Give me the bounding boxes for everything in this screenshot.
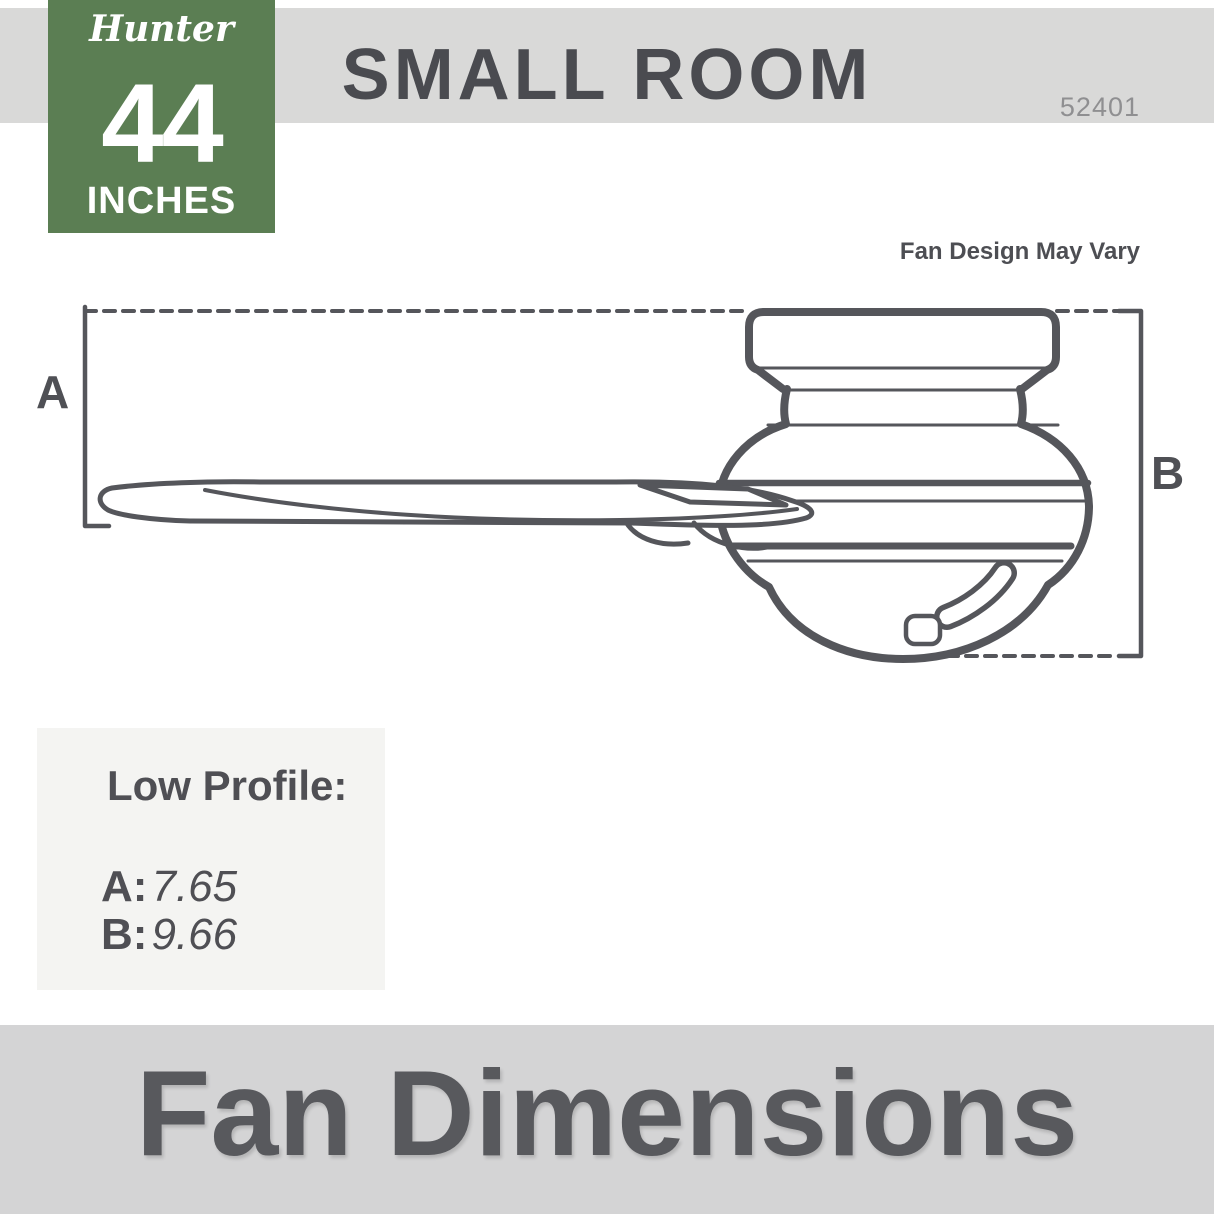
- dim-a-label: A: [36, 366, 69, 418]
- spec-a-label: A:: [101, 862, 147, 911]
- spec-b-label: B:: [101, 910, 147, 959]
- specs-box: Low Profile: A:7.65 B:9.66: [37, 728, 385, 990]
- footer-bar: Fan Dimensions: [0, 1025, 1214, 1214]
- specs-heading: Low Profile:: [107, 762, 347, 810]
- canopy-fill: [749, 312, 1056, 389]
- light-switch-detail: [906, 616, 940, 644]
- spec-row-a: A:7.65: [101, 862, 237, 912]
- spec-b-value: 9.66: [151, 910, 237, 959]
- dim-b-label: B: [1151, 447, 1184, 499]
- footer-title: Fan Dimensions: [0, 1043, 1214, 1183]
- spec-a-value: 7.65: [151, 862, 237, 911]
- fan-dimensions-infographic: SMALL ROOM 52401 Hunter 44 INCHES Fan De…: [0, 0, 1214, 1214]
- spec-row-b: B:9.66: [101, 910, 237, 960]
- dim-b-bracket: [1119, 311, 1141, 656]
